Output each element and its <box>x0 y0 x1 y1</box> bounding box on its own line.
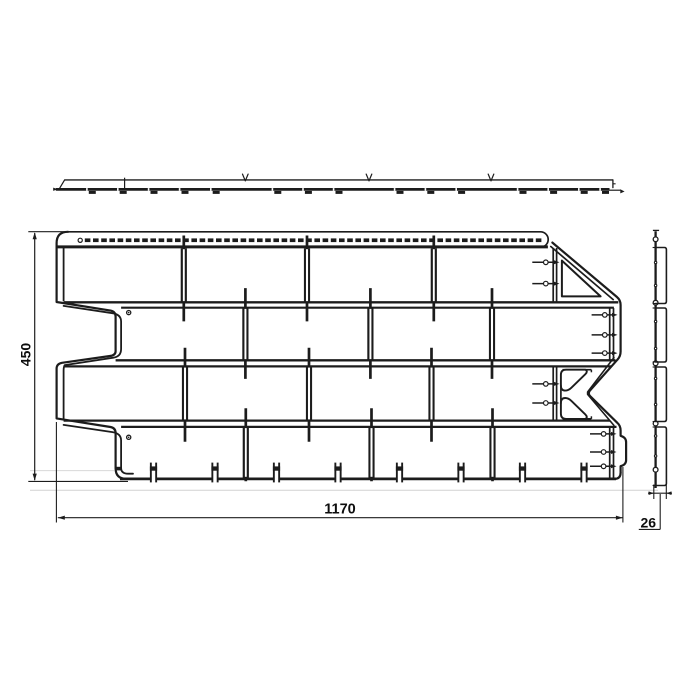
svg-text:1170: 1170 <box>324 502 355 518</box>
svg-text:450: 450 <box>17 343 33 367</box>
svg-text:26: 26 <box>641 515 657 531</box>
